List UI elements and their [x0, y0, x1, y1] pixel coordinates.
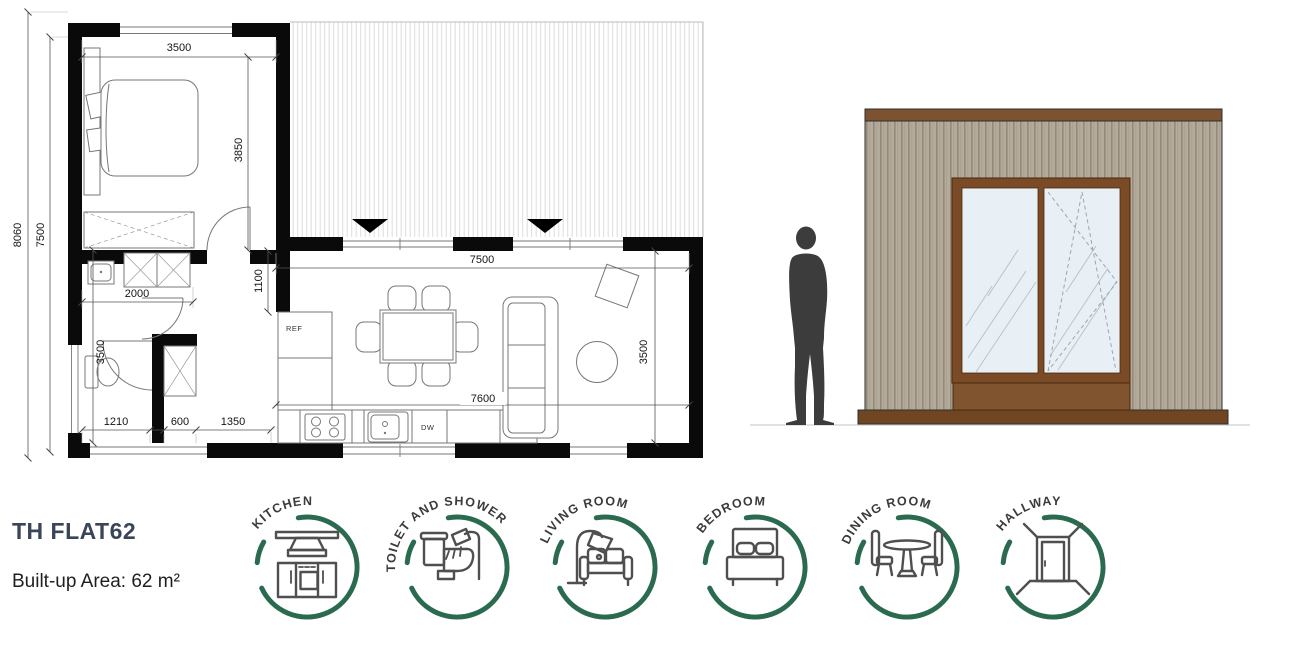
dim-inner-depth: 7500	[35, 223, 47, 247]
elevation-view	[740, 86, 1260, 436]
dim-living-depth: 3500	[638, 340, 650, 364]
badge-kitchen: KITCHEN	[232, 475, 382, 635]
dining-room-icon	[872, 531, 942, 576]
dim-bedroom-width: 3500	[167, 42, 191, 54]
badge-toilet-shower: TOILET AND SHOWER	[382, 475, 532, 635]
person-silhouette	[786, 227, 834, 426]
badge-dining-room: DINING ROOM	[832, 475, 982, 635]
terrace-deck	[290, 22, 703, 237]
living-room-icon	[568, 531, 632, 585]
floor-plan: REF DW	[0, 0, 720, 470]
dim-overall-depth: 8060	[12, 223, 24, 247]
dim-hall-width: 2000	[125, 288, 149, 300]
dim-living-width: 7500	[470, 254, 494, 266]
window-pane-left	[962, 188, 1038, 373]
side-table	[577, 342, 618, 383]
sofa	[503, 297, 558, 438]
caption-block: TH FLAT62 Built-up Area: 62 m²	[12, 518, 252, 593]
page-title: TH FLAT62	[12, 518, 252, 545]
hall-sink	[88, 261, 114, 284]
wardrobe	[84, 212, 194, 248]
badge-bedroom: BEDROOM	[680, 475, 830, 635]
closet	[164, 346, 196, 396]
kitchen-icon	[276, 532, 338, 597]
roof-trim	[865, 109, 1222, 121]
dishwasher-label: DW	[421, 423, 435, 432]
window-spandrel	[953, 383, 1130, 410]
dim-bedroom-depth: 3850	[233, 138, 245, 162]
dim-partition: 1100	[253, 269, 265, 293]
accent-chair	[595, 264, 639, 308]
plan-sheet: REF DW	[0, 0, 1300, 655]
badge-living-room: LIVING ROOM	[530, 475, 680, 635]
fridge-label: REF	[286, 324, 303, 333]
area-text: Built-up Area: 62 m²	[12, 571, 252, 593]
house-facade	[858, 109, 1228, 424]
house-base	[858, 410, 1228, 424]
badge-kitchen-label: KITCHEN	[249, 494, 313, 532]
window	[952, 178, 1130, 410]
dim-bath-width: 1210	[104, 416, 128, 428]
dim-nook-width: 1350	[221, 416, 245, 428]
dim-bath-depth: 3500	[95, 340, 107, 364]
hall-wardrobe	[124, 253, 190, 287]
bed	[84, 48, 198, 195]
toilet-shower-icon	[421, 529, 479, 579]
hallway-icon	[1017, 524, 1089, 594]
bedroom-icon	[727, 529, 783, 585]
dim-kitchen-run: 7600	[471, 393, 495, 405]
window-pane-right	[1044, 188, 1120, 373]
dining-set	[356, 286, 478, 386]
svg-text:KITCHEN: KITCHEN	[249, 494, 313, 532]
dim-closet-width: 600	[171, 416, 189, 428]
badge-hallway: HALLWAY	[978, 475, 1128, 635]
